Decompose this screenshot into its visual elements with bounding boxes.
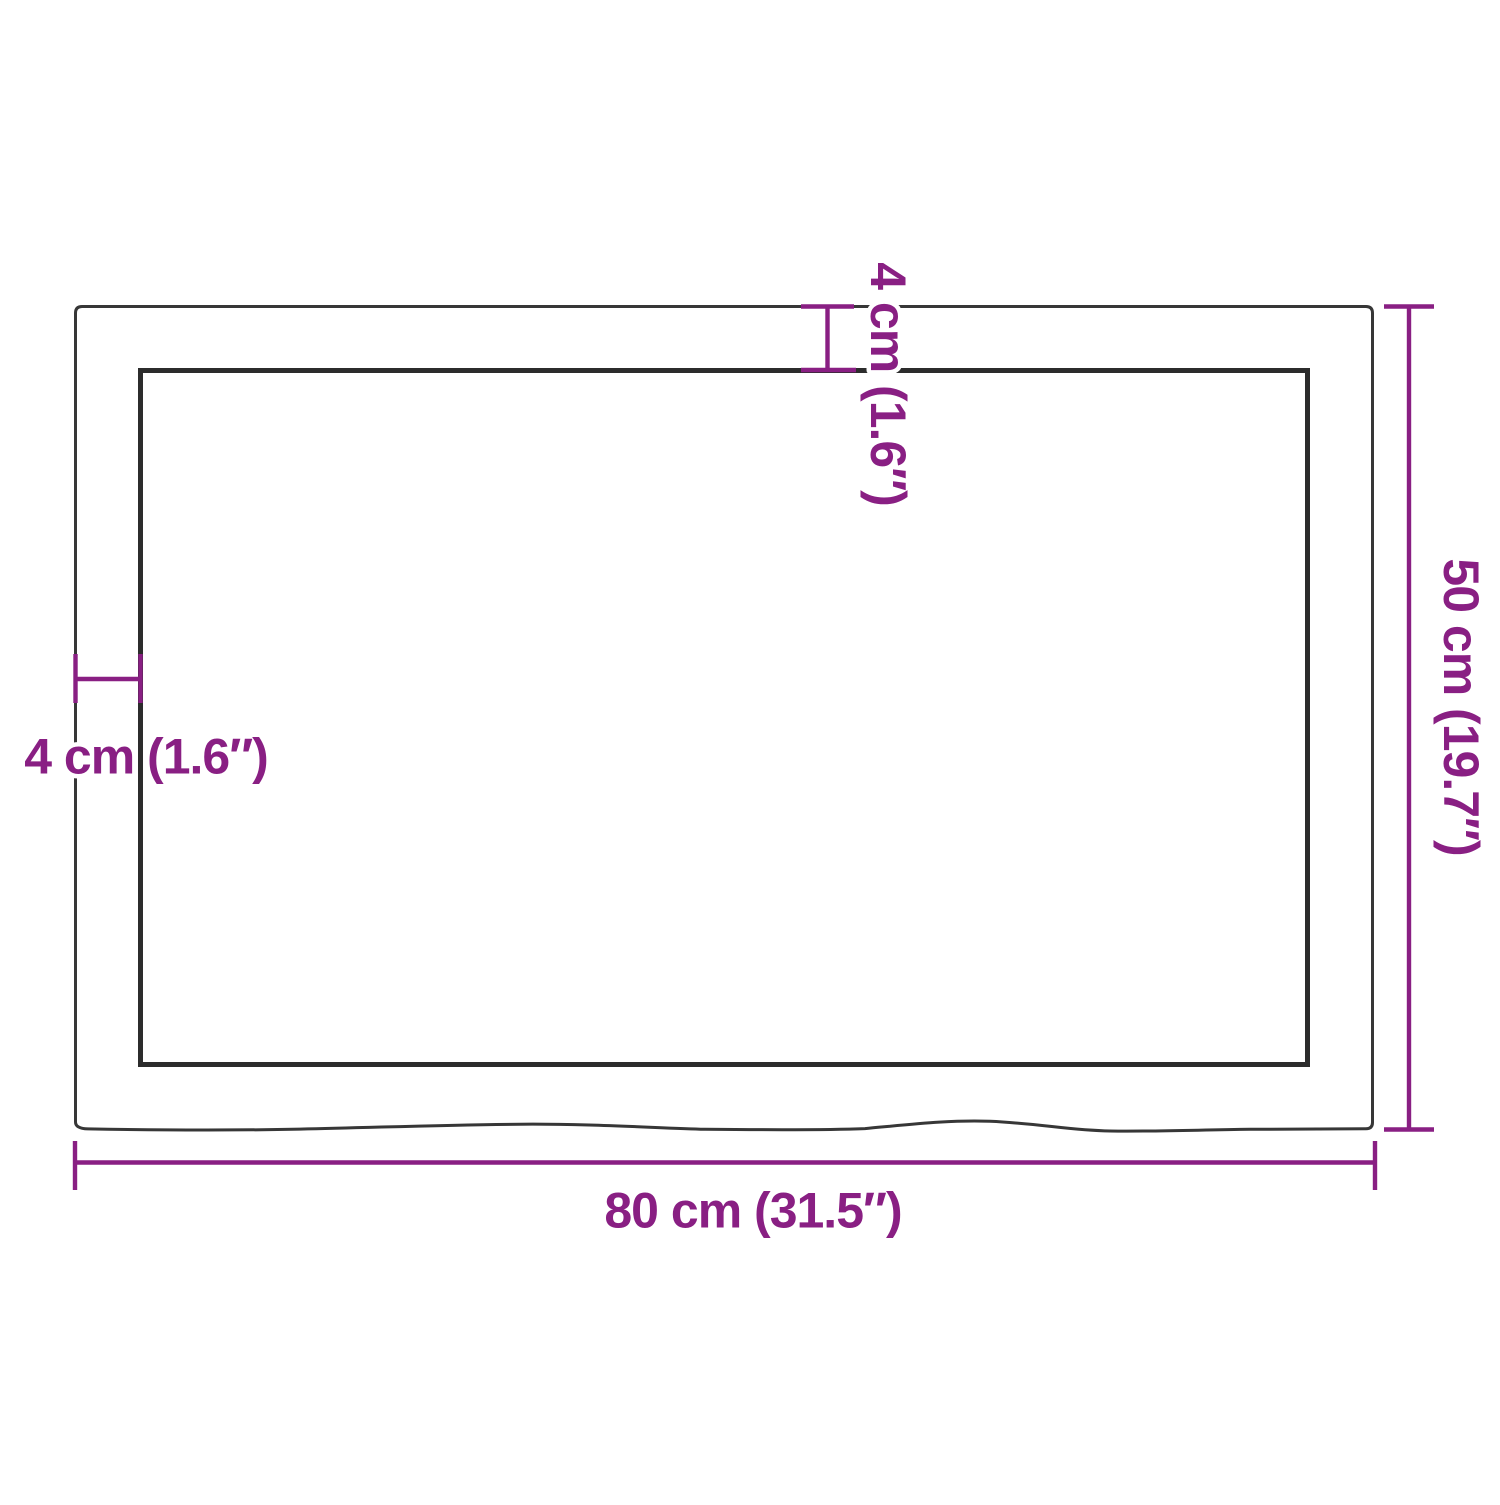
- svg-text:80 cm (31.5″): 80 cm (31.5″): [604, 1183, 901, 1239]
- svg-text:4 cm (1.6″): 4 cm (1.6″): [860, 262, 916, 506]
- svg-text:4 cm (1.6″): 4 cm (1.6″): [24, 729, 268, 785]
- svg-text:50 cm (19.7″): 50 cm (19.7″): [1433, 558, 1489, 855]
